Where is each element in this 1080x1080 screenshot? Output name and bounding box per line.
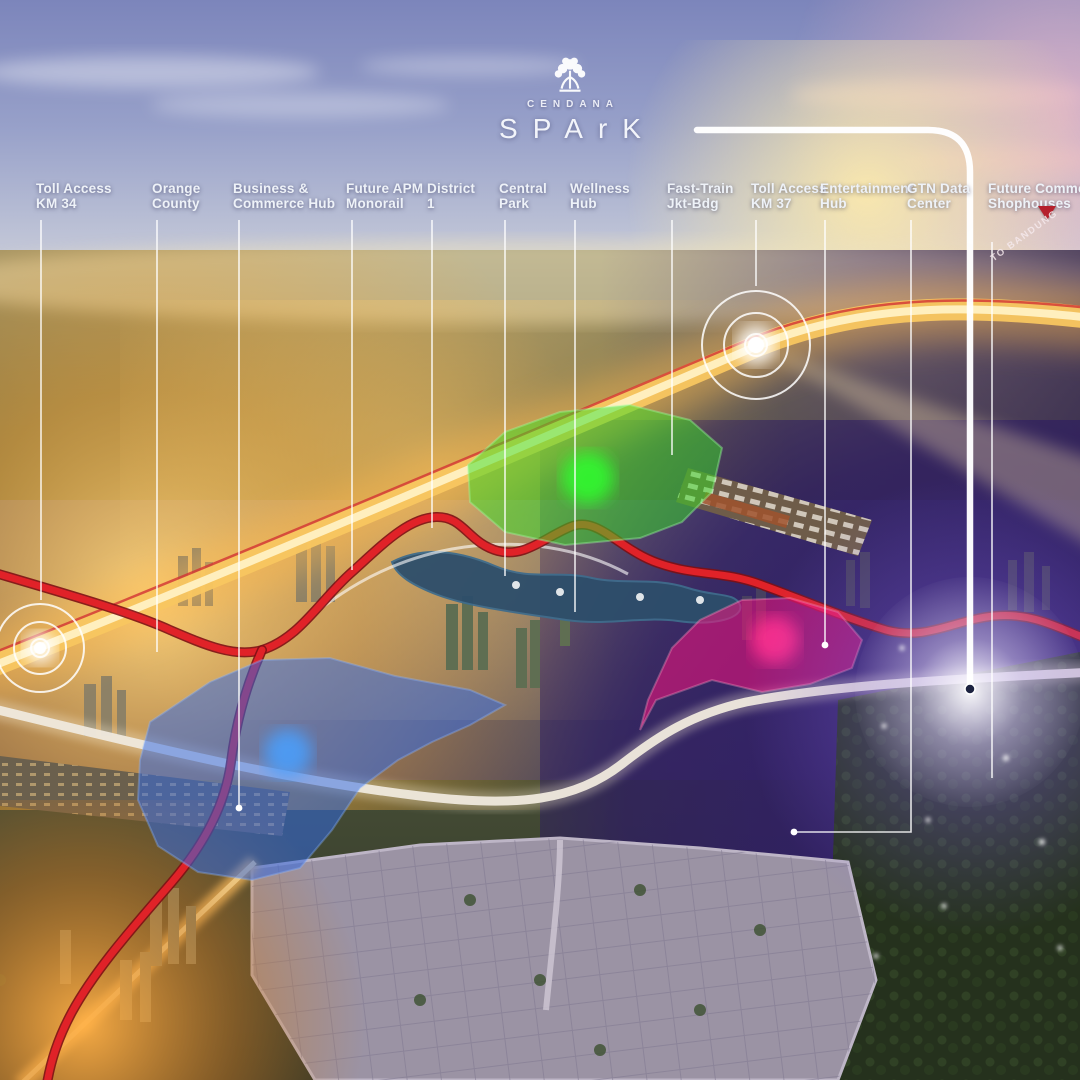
brand-name-small: CENDANA <box>420 99 720 110</box>
callout-entertainment-hub-line2: Hub <box>820 196 913 211</box>
callout-entertainment-hub: EntertainmentHub <box>820 181 913 211</box>
callout-wellness-hub: WellnessHub <box>570 181 630 211</box>
callout-gtn-data-center: GTN DataCenter <box>907 181 970 211</box>
callout-orange-county-line2: County <box>152 196 200 211</box>
callout-orange-county: OrangeCounty <box>152 181 200 211</box>
callout-future-commerce-shophouses-line1: Future Commerce <box>988 181 1080 196</box>
callout-future-commerce-shophouses: Future CommerceShophouses <box>988 181 1080 211</box>
callout-toll-access-km37: Toll AccessKM 37 <box>751 181 827 211</box>
callout-wellness-hub-line2: Hub <box>570 196 630 211</box>
callout-business-commerce-line2: Commerce Hub <box>233 196 335 211</box>
callout-future-apm-monorail-line1: Future APM <box>346 181 423 196</box>
callout-endpoint-glow <box>855 577 1080 807</box>
callout-toll-access-km37-line2: KM 37 <box>751 196 827 211</box>
callout-district-1-line1: District <box>427 181 475 196</box>
callout-fast-train-jkt-bdg-line2: Jkt-Bdg <box>667 196 734 211</box>
map-art <box>0 0 1080 1080</box>
callout-central-park-line2: Park <box>499 196 547 211</box>
callout-gtn-data-center-line2: Center <box>907 196 970 211</box>
tree-icon <box>553 56 587 96</box>
callout-district-1-line2: 1 <box>427 196 475 211</box>
callout-gtn-data-center-line1: GTN Data <box>907 181 970 196</box>
callout-toll-access-km34-line2: KM 34 <box>36 196 112 211</box>
callout-toll-access-km34-line1: Toll Access <box>36 181 112 196</box>
callout-toll-access-km34: Toll AccessKM 34 <box>36 181 112 211</box>
callout-central-park: CentralPark <box>499 181 547 211</box>
masterplan-poster: CENDANA SPArK Toll AccessKM 34OrangeCoun… <box>0 0 1080 1080</box>
callout-wellness-hub-line1: Wellness <box>570 181 630 196</box>
callout-fast-train-jkt-bdg-line1: Fast-Train <box>667 181 734 196</box>
callout-business-commerce: Business &Commerce Hub <box>233 181 335 211</box>
callout-future-apm-monorail-line2: Monorail <box>346 196 423 211</box>
callout-toll-access-km37-line1: Toll Access <box>751 181 827 196</box>
callout-district-1: District1 <box>427 181 475 211</box>
callout-future-commerce-shophouses-line2: Shophouses <box>988 196 1080 211</box>
brand-name-main: SPArK <box>420 113 720 145</box>
callout-future-apm-monorail: Future APMMonorail <box>346 181 423 211</box>
callout-orange-county-line1: Orange <box>152 181 200 196</box>
callout-fast-train-jkt-bdg: Fast-TrainJkt-Bdg <box>667 181 734 211</box>
callout-entertainment-hub-line1: Entertainment <box>820 181 913 196</box>
callout-central-park-line1: Central <box>499 181 547 196</box>
callout-business-commerce-line1: Business & <box>233 181 335 196</box>
brand-logo: CENDANA SPArK <box>420 56 720 145</box>
